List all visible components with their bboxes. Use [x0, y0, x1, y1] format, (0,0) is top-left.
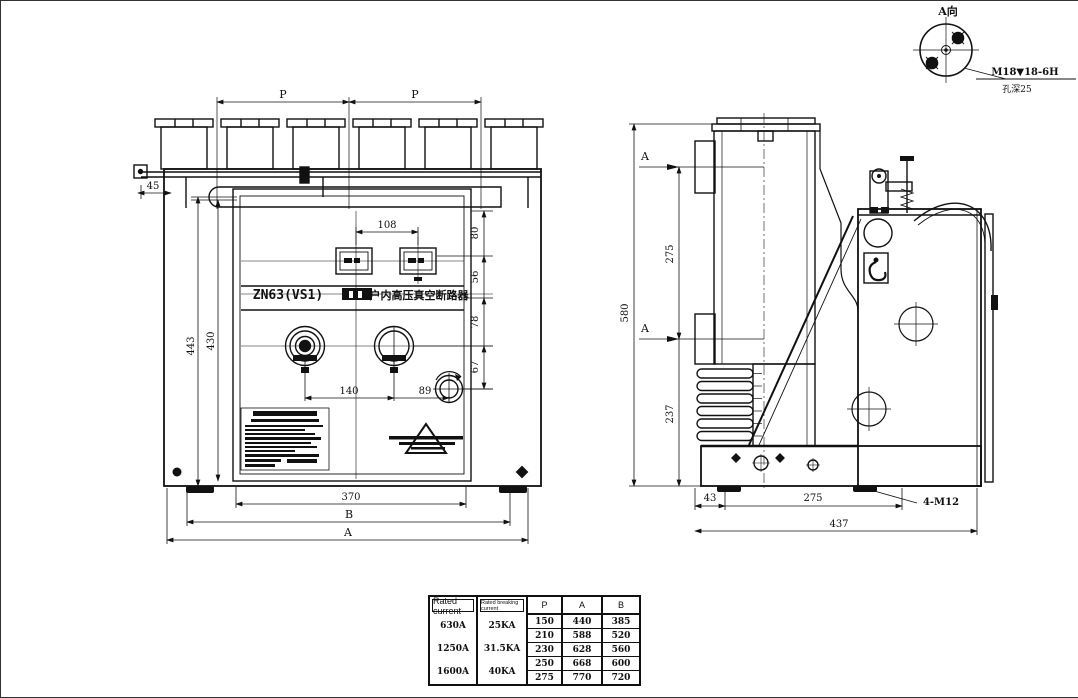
header-b: B: [603, 597, 639, 615]
table-cell: 210: [528, 629, 561, 643]
col-a: A 440 588 628 668 770: [563, 597, 603, 684]
dim-67: 67: [470, 361, 481, 374]
indicator-windows: [336, 248, 436, 281]
table-cell: 560: [603, 643, 639, 657]
detail-a-title: A向: [937, 4, 958, 18]
bolt-note-4-M12: 4-M12: [923, 497, 959, 508]
bellows-insulator: [697, 369, 762, 441]
front-view: [134, 97, 543, 493]
table-cell: 600: [603, 657, 639, 671]
breaking-current-value: 40KA: [489, 667, 516, 677]
side-view: [695, 113, 998, 492]
front-pole-centerlines: [217, 97, 481, 209]
table-cell: 150: [528, 615, 561, 629]
dim-A: A: [343, 526, 353, 539]
rated-current-value: 630A: [440, 621, 466, 631]
side-dimensions: [629, 124, 977, 535]
cable-loop: [914, 203, 991, 251]
col-p: P 150 210 230 250 275: [528, 597, 563, 684]
warning-label: [389, 424, 463, 453]
dim-430: 430: [206, 331, 217, 350]
rated-current-value: 1250A: [437, 644, 469, 654]
closing-button: [375, 326, 414, 401]
dim-237: 237: [665, 404, 676, 423]
hole-depth-note: 孔深25: [1002, 84, 1032, 95]
dim-89: 89: [419, 386, 432, 397]
col-breaking-current: Rated breaking current 25KA 31.5KA 40KA: [478, 597, 528, 684]
dim-108: 108: [377, 220, 396, 231]
section-arrow-lower: A: [640, 322, 650, 335]
engineering-drawing-sheet: P P 45 108 80 56 78 67 443 430 140 89 37…: [0, 0, 1078, 698]
dim-275-vertical: 275: [665, 244, 676, 263]
dim-45: 45: [147, 181, 160, 192]
header-rated-current: Rated current: [432, 599, 474, 612]
lifting-hook-icon: [864, 253, 888, 283]
front-feet: [173, 466, 529, 493]
table-cell: 275: [528, 671, 561, 684]
dim-443: 443: [186, 336, 197, 355]
table-cell: 588: [563, 629, 601, 643]
table-cell: 770: [563, 671, 601, 684]
side-crosshair-holes: [847, 302, 938, 431]
table-cell: 230: [528, 643, 561, 657]
rated-current-value: 1600A: [437, 667, 469, 677]
drawing-linework: P P 45 108 80 56 78 67 443 430 140 89 37…: [1, 1, 1078, 697]
dim-p-right: P: [411, 88, 419, 101]
table-cell: 385: [603, 615, 639, 629]
locating-hole-diamond: [516, 466, 529, 479]
dim-370: 370: [341, 492, 360, 503]
table-cell: 440: [563, 615, 601, 629]
mechanism-hole: [864, 219, 892, 247]
front-cabinet: [164, 169, 541, 486]
dim-580: 580: [620, 303, 631, 322]
table-cell: 720: [603, 671, 639, 684]
header-breaking-current: Rated breaking current: [480, 599, 524, 612]
top-bracket-assembly: [870, 156, 991, 251]
side-base: [701, 446, 981, 486]
dim-80: 80: [470, 227, 481, 240]
energy-storage-handle: [286, 327, 325, 402]
nameplate-fine-print: [241, 408, 329, 470]
dim-437: 437: [829, 519, 848, 530]
table-cell: 628: [563, 643, 601, 657]
front-slot-plate: [209, 187, 501, 207]
side-pole-body: [714, 131, 815, 364]
front-panel-inner: [240, 196, 464, 474]
dim-140: 140: [339, 386, 358, 397]
header-p: P: [528, 597, 561, 615]
table-cell: 520: [603, 629, 639, 643]
locating-hole-round: [173, 468, 182, 477]
product-name: 户内高压真空断路器: [370, 288, 470, 302]
breaking-current-value: 31.5KA: [484, 644, 520, 654]
dim-p-left: P: [279, 88, 287, 101]
side-mechanism-box: [858, 209, 981, 486]
thread-spec: M18▼18-6H: [991, 67, 1058, 78]
table-cell: 250: [528, 657, 561, 671]
dim-43: 43: [704, 493, 717, 504]
section-arrow-upper: A: [640, 150, 650, 163]
side-rear-panel: [985, 214, 993, 482]
col-rated-current: Rated current 630A 1250A 1600A: [430, 597, 478, 684]
breaking-current-value: 25KA: [489, 621, 516, 631]
dim-275-bottom: 275: [803, 493, 822, 504]
dim-78: 78: [470, 316, 481, 329]
col-b: B 385 520 560 600 720: [603, 597, 639, 684]
header-a: A: [563, 597, 601, 615]
model-label: ZN63(VS1): [253, 288, 323, 303]
table-cell: 668: [563, 657, 601, 671]
brand-logo: [342, 288, 372, 300]
spec-table: Rated current 630A 1250A 1600A Rated bre…: [428, 595, 641, 686]
dim-56: 56: [470, 271, 481, 284]
dim-B: B: [345, 508, 353, 521]
